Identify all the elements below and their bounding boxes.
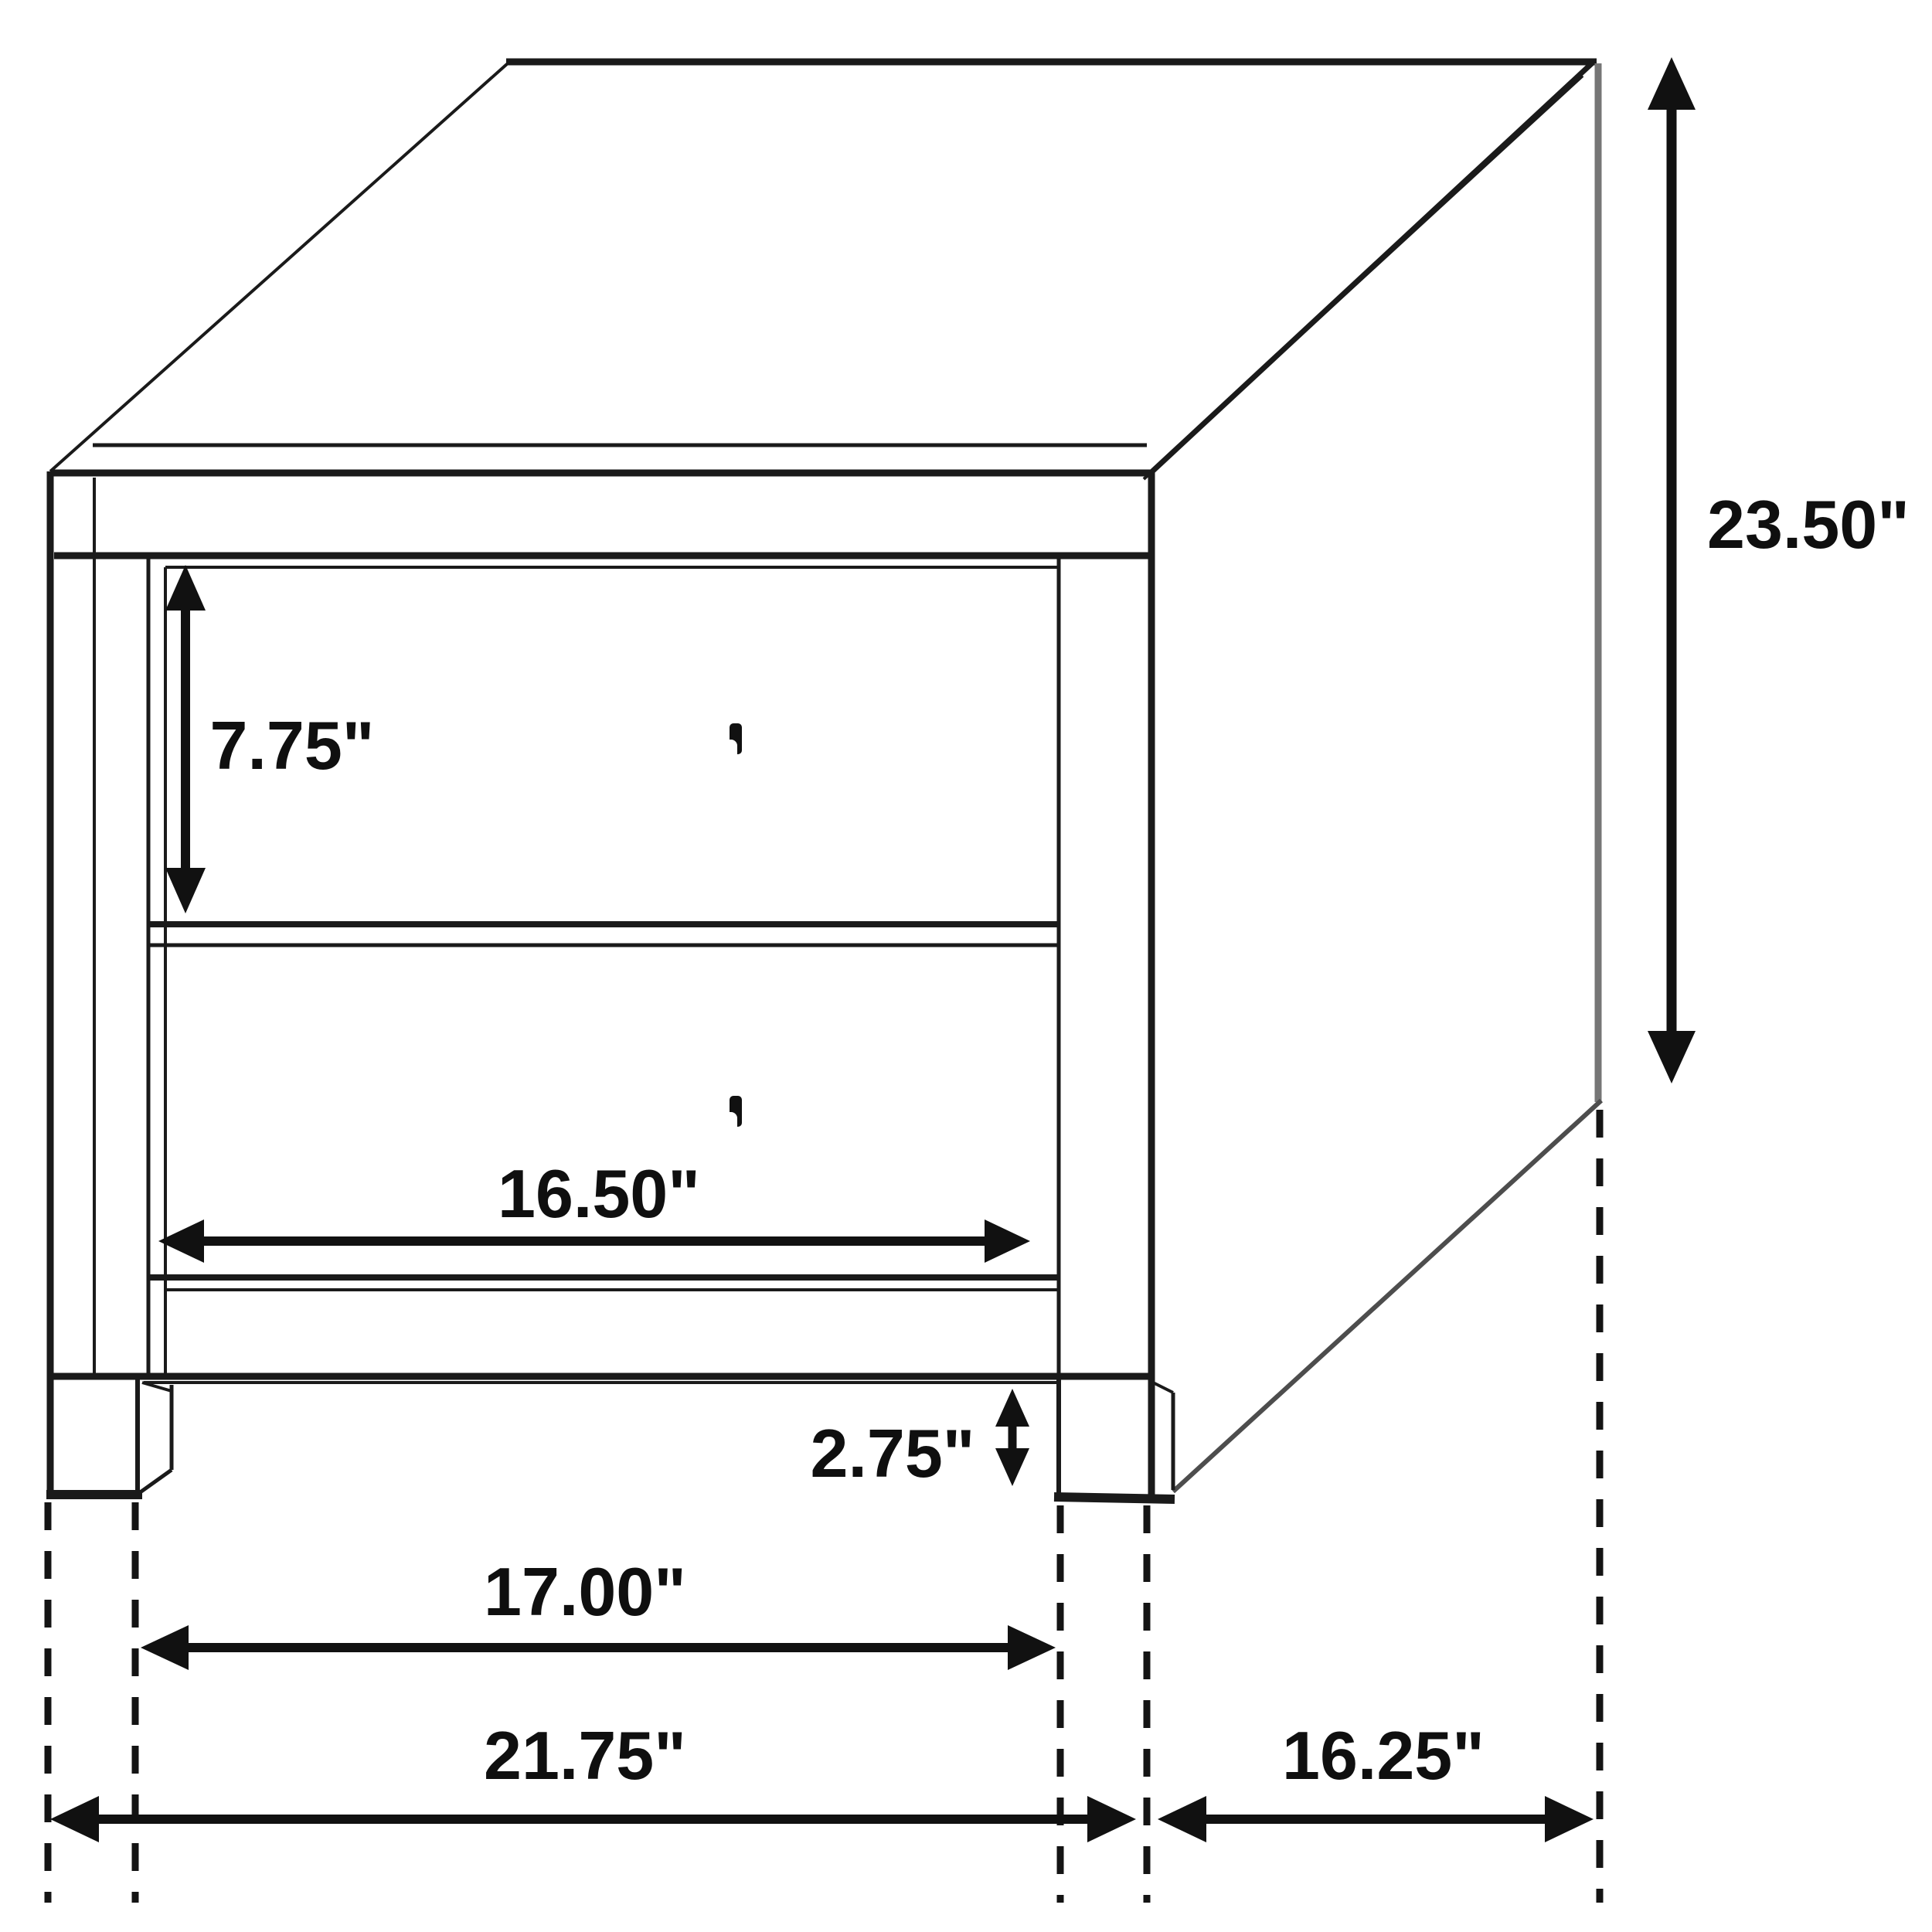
arrowhead-left-icon <box>141 1625 189 1670</box>
dim-overall-width: 21.75" <box>50 1717 1136 1842</box>
handle-right-tab <box>702 1100 730 1114</box>
diagram-canvas: 7.75" 16.50" 2.75" 17.00" 21.75" 16.25" <box>0 0 1932 1932</box>
dim-label-overall-height: 23.50" <box>1707 486 1910 563</box>
right-leg-bottom-edge <box>1054 1497 1175 1499</box>
arrowhead-left-icon <box>1158 1796 1206 1842</box>
handle-left-tab <box>471 1100 498 1114</box>
dim-overall-height: 23.50" <box>1648 57 1910 1083</box>
dim-label-between-legs: 17.00" <box>484 1553 686 1630</box>
handle-left-tab <box>471 727 498 741</box>
left-leg <box>50 1377 138 1495</box>
dim-depth: 16.25" <box>1158 1717 1594 1842</box>
legs <box>46 1376 1175 1499</box>
dim-label-leg-height: 2.75" <box>811 1415 975 1492</box>
arrowhead-up-icon <box>1648 57 1696 110</box>
dim-leg-height: 2.75" <box>811 1389 1030 1492</box>
handle-right-tab <box>702 727 730 741</box>
left-leg-side-diagonal <box>139 1470 172 1493</box>
arrowhead-right-icon <box>1545 1796 1594 1842</box>
dim-between-legs: 17.00" <box>141 1553 1056 1670</box>
handle-bar <box>465 740 737 760</box>
handle-bar <box>465 1112 737 1133</box>
arrowhead-down-icon <box>995 1448 1029 1486</box>
nightstand-dimension-diagram: 7.75" 16.50" 2.75" 17.00" 21.75" 16.25" <box>0 0 1932 1932</box>
arrowhead-right-icon <box>1008 1625 1056 1670</box>
dim-label-drawer-height: 7.75" <box>210 707 375 784</box>
arrowhead-right-icon <box>1087 1796 1136 1842</box>
dim-label-drawer-width: 16.50" <box>498 1155 700 1232</box>
dim-label-depth: 16.25" <box>1282 1717 1485 1794</box>
arrowhead-up-icon <box>995 1389 1029 1427</box>
right-leg <box>1059 1377 1151 1495</box>
arrowhead-down-icon <box>1648 1031 1696 1083</box>
dim-label-overall-width: 21.75" <box>484 1717 686 1794</box>
arrowhead-left-icon <box>50 1796 99 1842</box>
